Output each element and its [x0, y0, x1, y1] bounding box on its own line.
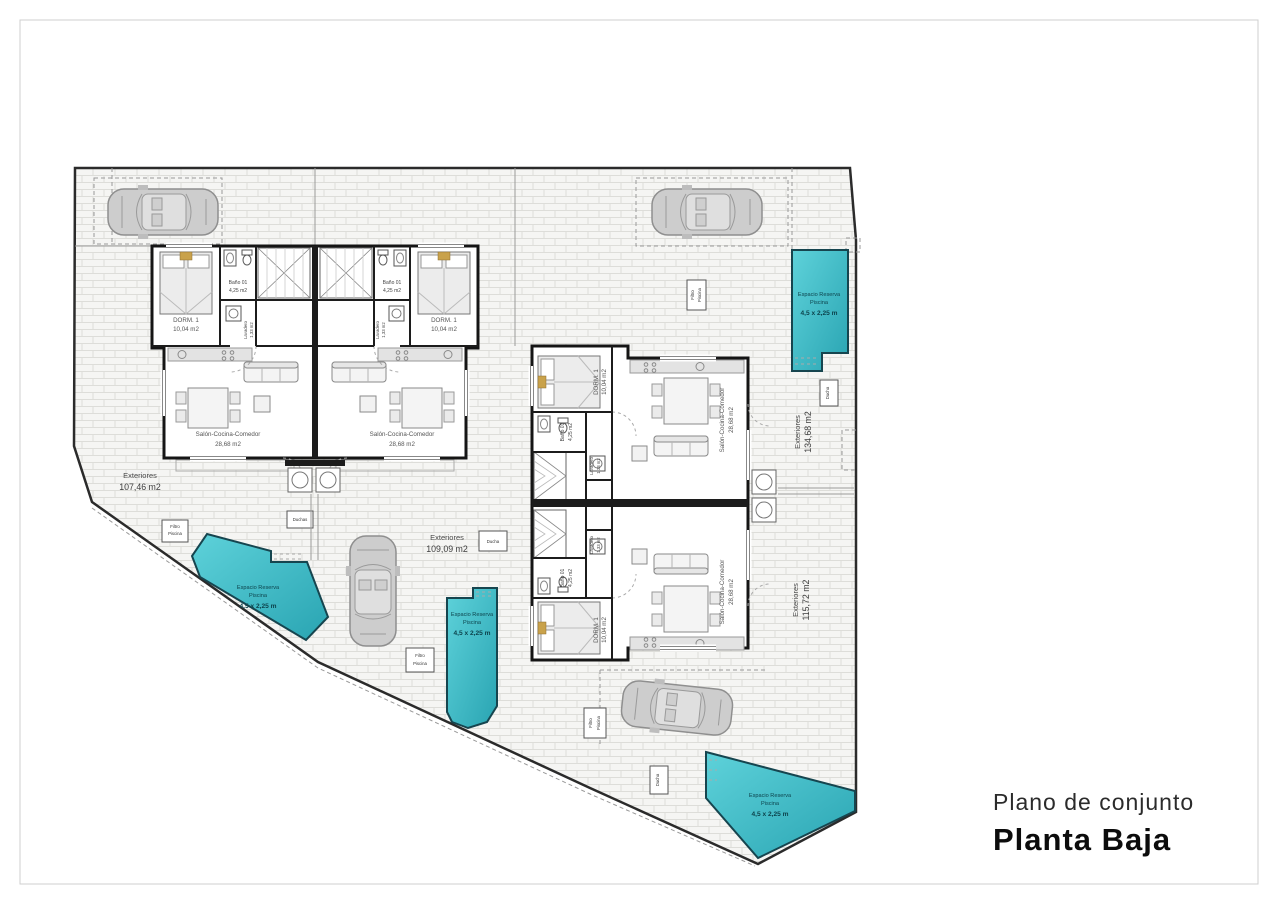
living-area: 28,68 m2 — [728, 579, 735, 605]
pool-filter-label: Piscina — [596, 715, 601, 729]
wall-stub — [285, 460, 345, 466]
bathroom-label: Baño 01 — [560, 568, 566, 587]
pool-filter-label: Filtro — [690, 290, 695, 300]
shower-pad-icon — [316, 468, 340, 492]
pool-label: Piscina — [249, 593, 268, 599]
living-area: 28,68 m2 — [215, 441, 241, 448]
pool-label: Espacio Reserva — [749, 793, 792, 799]
bathroom-area: 4,25 m2 — [229, 288, 247, 294]
exterior-area: 134,68 m2 — [803, 411, 813, 453]
pool-top-right: Espacio Reserva Piscina 4,5 x 2,25 m — [792, 250, 848, 371]
living-label: Salón-Cocina-Comedor — [719, 560, 726, 625]
shower-label: Ducha — [655, 773, 660, 786]
bathroom-area: 4,25 m2 — [383, 288, 401, 294]
car-icon — [108, 185, 218, 239]
pool-size-label: 4,5 x 2,25 m — [800, 310, 837, 317]
bathroom-label: Baño 01 — [383, 280, 402, 286]
pool-filter-label: Filtro — [588, 718, 593, 728]
kitchen-counter — [168, 348, 252, 361]
pool-filter-label: Piscina — [697, 287, 702, 301]
exterior-label: Exteriores — [123, 471, 157, 480]
bedroom-label: DORM. 1 — [593, 617, 600, 643]
pool-size-label: 4,5 x 2,25 m — [239, 603, 276, 610]
shower-pad-icon — [752, 498, 776, 522]
pool-size-label: 4,5 x 2,25 m — [453, 630, 490, 637]
shower-label: Duchas — [293, 517, 308, 522]
bedroom-area: 10,04 m2 — [173, 326, 199, 333]
laundry-area: 1,33 m2 — [249, 322, 254, 338]
bathroom-area: 4,25 m2 — [568, 423, 574, 441]
bedroom-area: 10,04 m2 — [601, 369, 608, 395]
laundry-area: 1,33 m2 — [596, 537, 601, 553]
bathroom-label: Baño 01 — [560, 422, 566, 441]
dining-table-icon — [664, 378, 708, 424]
armchair-icon — [632, 446, 647, 461]
shower-pad-icon — [752, 470, 776, 494]
shower-pad-icon — [288, 468, 312, 492]
plan-title: Planta Baja — [993, 822, 1171, 857]
shower-label: Ducha — [487, 539, 500, 544]
plan-subtitle: Plano de conjunto — [993, 789, 1194, 815]
exterior-area: 109,09 m2 — [426, 544, 468, 554]
pool-middle: Espacio Reserva Piscina 4,5 x 2,25 m — [447, 588, 497, 728]
pool-label: Piscina — [761, 801, 780, 807]
party-wall — [532, 499, 748, 507]
pool-filter-label: Piscina — [413, 661, 427, 666]
pool-filter-label: Filtro — [170, 524, 180, 529]
pool-filter-box: Filtro Piscina — [687, 280, 706, 310]
title-block: Plano de conjunto Planta Baja — [993, 789, 1194, 857]
pool-label: Piscina — [810, 300, 829, 306]
pool-label: Espacio Reserva — [451, 612, 494, 618]
shower-box: Ducha — [479, 531, 507, 551]
car-icon — [346, 536, 400, 646]
shower-box: Ducha — [820, 380, 838, 406]
car-icon — [652, 185, 762, 239]
laundry-area: 1,33 m2 — [596, 458, 601, 474]
pool-size-label: 4,5 x 2,25 m — [751, 811, 788, 818]
bedroom-label: DORM. 1 — [593, 369, 600, 395]
laundry-label: Lavadero — [243, 320, 248, 339]
exterior-label: Exteriores — [430, 533, 464, 542]
bedroom-label: DORM. 1 — [431, 317, 457, 324]
exterior-area: 115,72 m2 — [801, 579, 811, 620]
pool-filter-box: Filtro Piscina — [406, 648, 434, 672]
bedroom-label: DORM. 1 — [173, 317, 199, 324]
shower-box: Duchas — [287, 511, 313, 528]
living-area: 28,68 m2 — [728, 407, 735, 433]
bedroom-area: 10,04 m2 — [431, 326, 457, 333]
laundry-label: Lavadero — [589, 456, 594, 475]
pool-filter-label: Piscina — [168, 531, 182, 536]
laundry-label: Lavadero — [375, 320, 380, 339]
living-label: Salón-Cocina-Comedor — [196, 431, 261, 438]
pool-filter-label: Filtro — [415, 653, 425, 658]
pool-label: Piscina — [463, 620, 482, 626]
pool-filter-box: Filtro Piscina — [584, 708, 606, 738]
armchair-icon — [254, 396, 270, 412]
living-label: Salón-Cocina-Comedor — [719, 388, 726, 453]
exterior-area: 107,46 m2 — [119, 482, 161, 492]
plan-sheet: Espacio Reserva Piscina 4,5 x 2,25 m Esp… — [0, 0, 1280, 904]
bedroom-area: 10,04 m2 — [601, 617, 608, 643]
right-building: DORM. 1 10,04 m2 Baño 01 4,25 m2 Lavader… — [529, 346, 771, 660]
exterior-label: Exteriores — [791, 583, 800, 617]
pool-filter-box: Filtro Piscina — [162, 520, 188, 542]
floor-plan-canvas: Espacio Reserva Piscina 4,5 x 2,25 m Esp… — [0, 0, 1280, 904]
party-wall — [312, 246, 318, 458]
shower-box: Ducha — [650, 766, 668, 794]
living-label: Salón-Cocina-Comedor — [370, 431, 435, 438]
laundry-label: Lavadero — [589, 535, 594, 554]
bathroom-area: 4,25 m2 — [568, 569, 574, 587]
exterior-label: Exteriores — [793, 415, 802, 449]
living-area: 28,68 m2 — [389, 441, 415, 448]
left-building: DORM. 1 10,04 m2 Baño 01 4,25 m2 Lavader… — [152, 243, 478, 479]
pool-label: Espacio Reserva — [237, 585, 280, 591]
bathroom-label: Baño 01 — [229, 280, 248, 286]
pool-label: Espacio Reserva — [798, 292, 841, 298]
shower-label: Ducha — [825, 386, 830, 399]
laundry-area: 1,33 m2 — [381, 322, 386, 338]
